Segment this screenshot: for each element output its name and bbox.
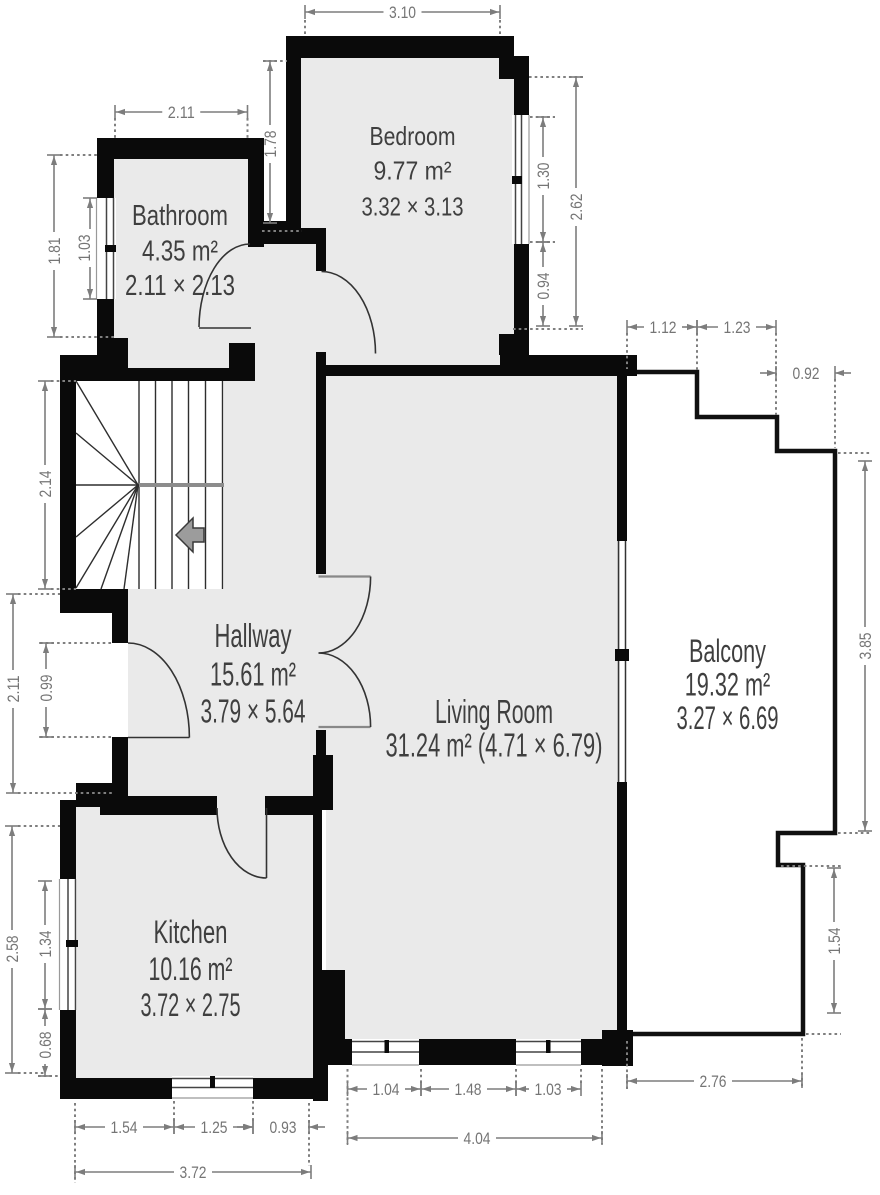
svg-text:2.11: 2.11 <box>4 676 23 703</box>
svg-text:3.72: 3.72 <box>180 1163 207 1182</box>
svg-text:Living Room: Living Room <box>435 693 553 730</box>
svg-text:Bedroom: Bedroom <box>370 121 456 151</box>
svg-text:1.48: 1.48 <box>455 1080 482 1099</box>
svg-text:Balcony: Balcony <box>689 633 766 669</box>
svg-text:3.32 × 3.13: 3.32 × 3.13 <box>362 192 464 222</box>
svg-text:1.23: 1.23 <box>724 318 751 337</box>
svg-text:1.54: 1.54 <box>825 928 844 955</box>
svg-text:1.03: 1.03 <box>75 235 94 262</box>
svg-text:1.78: 1.78 <box>261 131 280 158</box>
svg-text:2.14: 2.14 <box>36 471 55 498</box>
svg-text:0.92: 0.92 <box>793 364 820 383</box>
svg-text:1.03: 1.03 <box>535 1080 562 1099</box>
svg-text:1.04: 1.04 <box>373 1080 400 1099</box>
svg-text:19.32 m²: 19.32 m² <box>685 667 771 703</box>
svg-text:0.68: 0.68 <box>36 1032 55 1059</box>
svg-text:3.10: 3.10 <box>389 3 416 22</box>
svg-text:3.72 × 2.75: 3.72 × 2.75 <box>141 987 241 1023</box>
svg-text:0.99: 0.99 <box>37 675 56 702</box>
svg-text:9.77 m²: 9.77 m² <box>374 156 452 186</box>
svg-text:1.81: 1.81 <box>45 238 64 265</box>
svg-text:Kitchen: Kitchen <box>154 914 228 950</box>
svg-text:2.11 × 2.13: 2.11 × 2.13 <box>125 270 235 302</box>
svg-text:3.27 × 6.69: 3.27 × 6.69 <box>677 700 779 736</box>
svg-text:2.11: 2.11 <box>168 103 195 122</box>
svg-text:3.85: 3.85 <box>856 633 875 660</box>
svg-text:1.25: 1.25 <box>201 1118 228 1137</box>
svg-text:1.12: 1.12 <box>650 318 677 337</box>
svg-text:2.62: 2.62 <box>567 194 586 221</box>
svg-text:Hallway: Hallway <box>215 617 292 654</box>
svg-text:0.93: 0.93 <box>270 1118 297 1137</box>
svg-text:4.35 m²: 4.35 m² <box>142 236 218 268</box>
svg-text:3.79 × 5.64: 3.79 × 5.64 <box>201 693 306 730</box>
svg-text:2.76: 2.76 <box>700 1072 727 1091</box>
svg-text:31.24 m² (4.71 × 6.79): 31.24 m² (4.71 × 6.79) <box>386 727 603 764</box>
svg-text:4.04: 4.04 <box>464 1129 491 1148</box>
svg-text:10.16 m²: 10.16 m² <box>149 951 233 987</box>
svg-text:1.30: 1.30 <box>534 163 553 190</box>
svg-text:0.94: 0.94 <box>534 273 553 300</box>
svg-text:1.34: 1.34 <box>36 931 55 958</box>
svg-text:15.61 m²: 15.61 m² <box>210 656 296 693</box>
svg-text:2.58: 2.58 <box>3 936 22 963</box>
svg-text:Bathroom: Bathroom <box>132 200 228 232</box>
svg-text:1.54: 1.54 <box>111 1118 138 1137</box>
